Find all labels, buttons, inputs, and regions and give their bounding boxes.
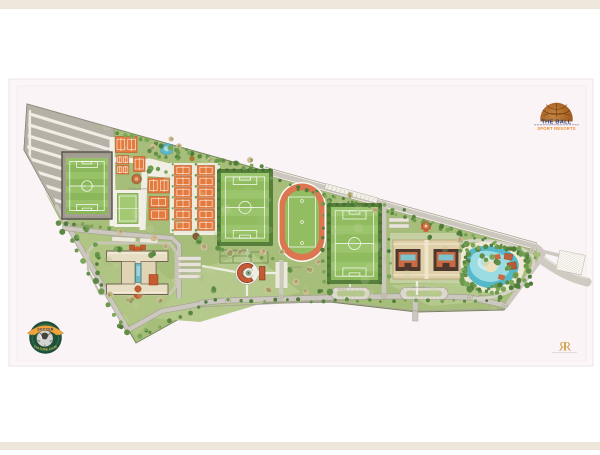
svg-text:PITCH 2: PITCH 2 <box>338 289 347 291</box>
svg-text:LAGOON POOL: LAGOON POOL <box>478 294 495 297</box>
svg-text:MAIN STADIUM: MAIN STADIUM <box>72 224 88 227</box>
svg-text:TRAINING PITCH: TRAINING PITCH <box>228 250 246 253</box>
svg-text:SOCCER: SOCCER <box>37 327 54 331</box>
svg-text:R: R <box>563 339 572 354</box>
svg-text:CLUB HOTEL: CLUB HOTEL <box>412 287 427 289</box>
svg-text:SPORT RESORTS: SPORT RESORTS <box>537 126 575 131</box>
svg-text:ATHLETICS: ATHLETICS <box>290 266 302 269</box>
